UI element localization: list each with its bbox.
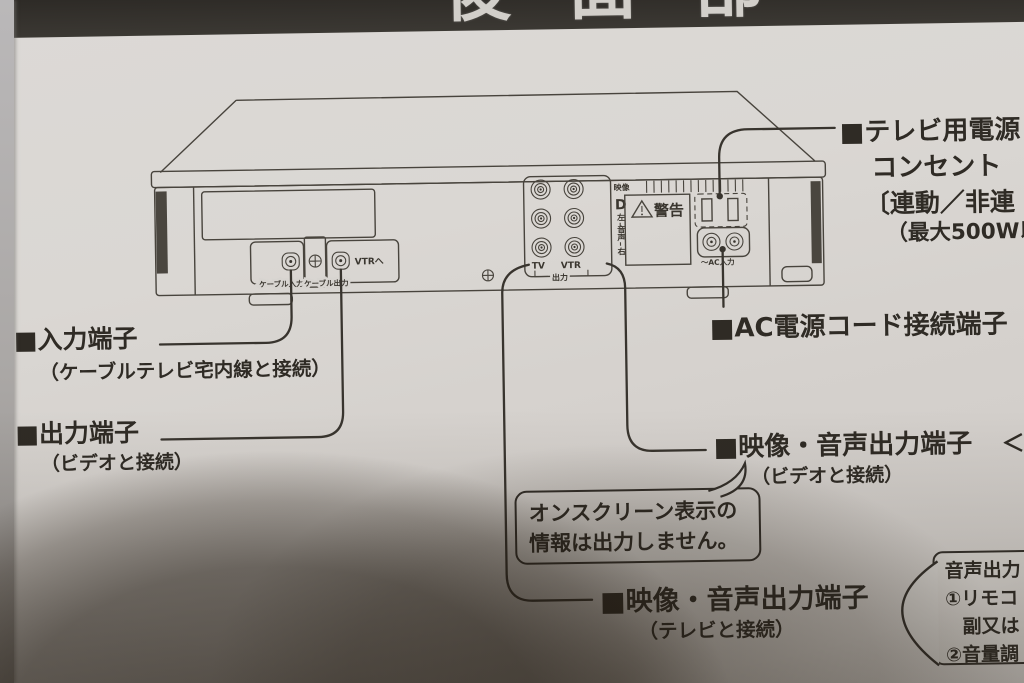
audio-output-note-box: 音声出力 ①リモコ 副又は ②音量調	[932, 549, 1024, 665]
av-out-video-title: ■映像・音声出力端子	[713, 430, 972, 464]
warning-label-box: 警告	[625, 194, 691, 265]
video-row-label: 映像	[614, 182, 631, 192]
vtr-column-label: VTR	[561, 261, 581, 271]
output-terminal-sub: （ビデオと接続）	[41, 452, 193, 476]
tv-power-title-line3: 〔連動／非連	[865, 188, 1015, 219]
page-left-edge	[0, 0, 14, 683]
audio-right-label: 右	[617, 246, 626, 256]
tv-power-title-line4: （最大500W以	[886, 220, 1024, 247]
ac-input-label: 〜AC入力	[701, 256, 735, 267]
ac-power-line	[723, 252, 724, 307]
cable-out-connector	[332, 252, 349, 269]
to-vtr-label: VTRへ	[355, 257, 384, 267]
output-terminal-title: ■出力端子	[15, 419, 139, 450]
input-terminal-title: ■入力端子	[14, 325, 138, 356]
av-out-video-sub: （ビデオと接続）	[751, 465, 903, 489]
audio-note-line3: 副又は	[945, 611, 1024, 641]
av-out-video-arrow: ＜	[1001, 431, 1024, 458]
warning-text: 警告	[653, 201, 684, 219]
onscreen-note-line1: オンスクリーン表示の	[528, 495, 758, 529]
tv-power-title-line1: ■テレビ用電源	[840, 116, 1021, 149]
audio-note-line4: ②音量調	[946, 639, 1024, 669]
coax-terminal-section: ケーブル入力 ケーブル出力 VTRへ	[250, 236, 399, 289]
screw-icon	[482, 270, 493, 281]
tv-column-label: TV	[532, 261, 545, 271]
printed-page: 後面部	[0, 0, 1024, 683]
manual-page-photo: 後面部	[0, 0, 1024, 683]
device-outline	[150, 90, 827, 307]
audio-note-line1: 音声出力	[944, 555, 1024, 585]
ac-power-title: ■AC電源コード接続端子	[710, 310, 1008, 345]
av-out-tv-title: ■映像・音声出力端子	[600, 582, 869, 617]
av-out-tv-sub: （テレビと接続）	[638, 619, 794, 644]
cable-in-connector	[282, 253, 299, 270]
audio-note-line2: ①リモコ	[945, 583, 1024, 613]
onscreen-note-line2: 情報は出力しません。	[529, 525, 759, 559]
audio-label-2: 声	[616, 232, 625, 242]
cable-input-label: ケーブル入力	[259, 278, 304, 289]
tv-power-title-line2: コンセント	[871, 152, 1001, 184]
output-group-label: 出力	[552, 272, 568, 282]
audio-left-label: 左	[616, 212, 625, 222]
input-terminal-sub: （ケーブルテレビ宅内線と接続）	[39, 358, 331, 385]
av-out-video-line	[607, 262, 706, 451]
vent-slits	[647, 179, 743, 193]
onscreen-note-bubble: オンスクリーン表示の 情報は出力しません。	[514, 487, 761, 565]
rca-jacks	[531, 179, 584, 257]
